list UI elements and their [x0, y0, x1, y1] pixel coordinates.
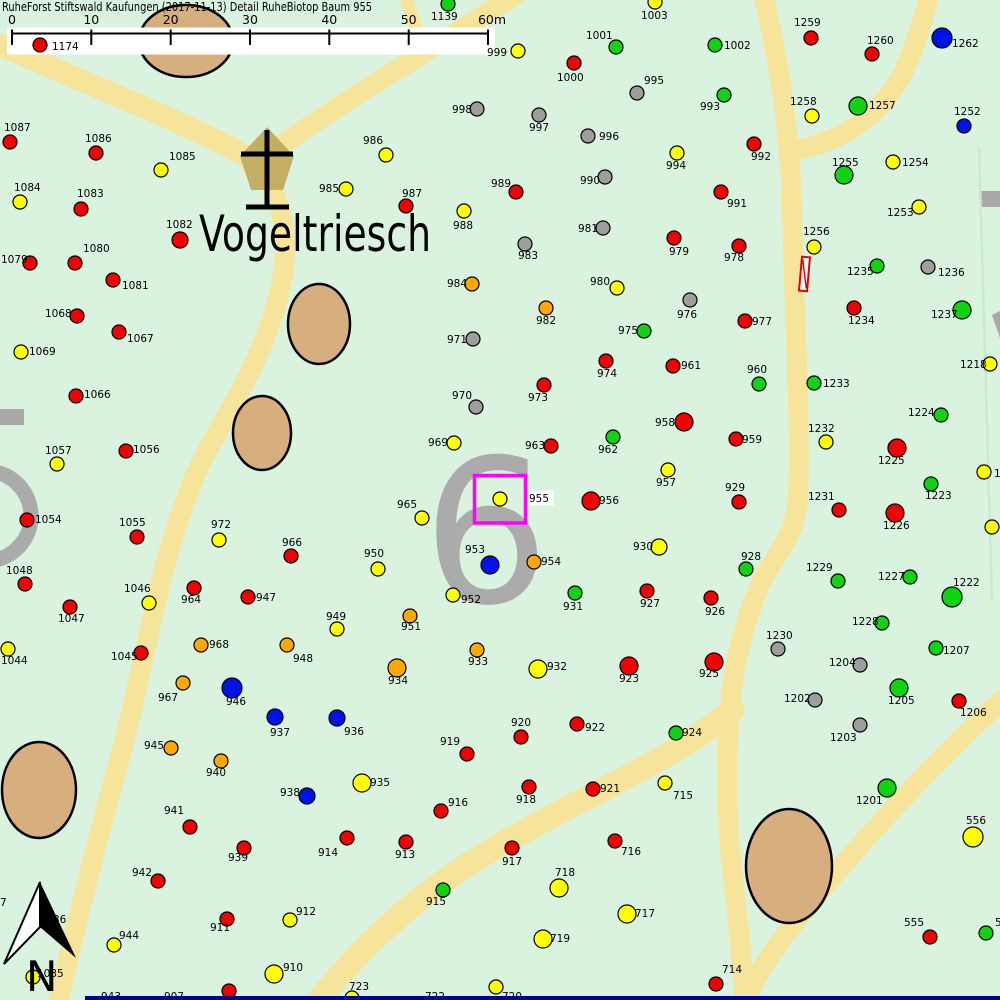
tree-marker-949[interactable] [330, 622, 344, 636]
tree-label: 1236 [938, 267, 965, 279]
tree-marker-1222[interactable] [942, 587, 962, 607]
tree-marker-1003[interactable] [648, 0, 662, 9]
tree-marker-1081[interactable] [106, 273, 120, 287]
tree-label: 957 [656, 477, 676, 489]
tree-marker-947[interactable] [241, 590, 255, 604]
tree-label: 1231 [808, 491, 835, 503]
tree-marker-995[interactable] [630, 86, 644, 100]
tree-label: 716 [621, 846, 641, 858]
clearing [746, 809, 832, 923]
tree-marker-1001[interactable] [609, 40, 623, 54]
map-title: RuheForst Stiftswald Kaufungen (2017-11-… [2, 0, 372, 14]
tree-label: 994 [666, 160, 686, 172]
tree-label: 969 [428, 437, 448, 449]
tree-marker-964[interactable] [187, 581, 201, 595]
tree-label: 949 [326, 611, 346, 623]
tree-marker-1203[interactable] [853, 718, 867, 732]
tree-marker-716[interactable] [608, 834, 622, 848]
tree-marker-965[interactable] [415, 511, 429, 525]
tree-label: 1218 [960, 359, 987, 371]
tree-marker-924[interactable] [669, 726, 683, 740]
tree-marker-971[interactable] [466, 332, 480, 346]
tree-marker-985[interactable] [339, 182, 353, 196]
tree-label: 945 [144, 740, 164, 752]
tree-label: 980 [590, 276, 610, 288]
tree-marker-940[interactable] [214, 754, 228, 768]
tree-label: 993 [700, 101, 720, 113]
tree-marker-1253[interactable] [912, 200, 926, 214]
tree-marker-956[interactable] [582, 492, 600, 510]
tree-marker-907[interactable] [222, 984, 236, 998]
tree-marker-1229[interactable] [831, 574, 845, 588]
tree-label: 1068 [45, 308, 72, 320]
tree-marker-980[interactable] [610, 281, 624, 295]
tree-label: 968 [209, 639, 229, 651]
tree-marker-1254[interactable] [886, 155, 900, 169]
tree-marker-1139[interactable] [441, 0, 455, 11]
tree-label: 1223 [925, 490, 952, 502]
tree-marker-916[interactable] [434, 804, 448, 818]
tree-marker-989[interactable] [509, 185, 523, 199]
tree-marker-972[interactable] [212, 533, 226, 547]
tree-marker-977[interactable] [738, 314, 752, 328]
tree-label: 995 [644, 75, 664, 87]
tree-marker-1056[interactable] [119, 444, 133, 458]
tree-marker-966[interactable] [284, 549, 298, 563]
tree-label: 965 [397, 499, 417, 511]
tree-label: 1067 [127, 333, 154, 345]
tree-label: 933 [468, 656, 488, 668]
tree-label: 1225 [878, 455, 905, 467]
tree-marker-984[interactable] [465, 277, 479, 291]
tree-label: 989 [491, 178, 511, 190]
tree-label: 983 [518, 250, 538, 262]
tree-label: 922 [585, 722, 605, 734]
tree-marker-1002[interactable] [708, 38, 722, 52]
tree-label: 1206 [960, 707, 987, 719]
tree-label: 1000 [557, 72, 584, 84]
tree-marker-717[interactable] [618, 905, 636, 923]
tree-marker-998[interactable] [470, 102, 484, 116]
tree-label: 1260 [867, 35, 894, 47]
tree-marker-1084[interactable] [13, 195, 27, 209]
tree-marker-1087[interactable] [3, 135, 17, 149]
clearing [2, 742, 76, 838]
tree-marker-1086[interactable] [89, 146, 103, 160]
tree-marker-969[interactable] [447, 436, 461, 450]
tree-marker-942[interactable] [151, 874, 165, 888]
gray-structure [0, 409, 24, 425]
tree-marker-1068[interactable] [70, 309, 84, 323]
tree-marker-1085[interactable] [154, 163, 168, 177]
tree-label: 963 [525, 440, 545, 452]
tree-label: 932 [547, 661, 567, 673]
tree-label: 958 [655, 417, 675, 429]
tree-marker-962[interactable] [606, 430, 620, 444]
tree-label: 961 [681, 360, 701, 372]
tree-marker-999[interactable] [511, 44, 525, 58]
tree-label: 1056 [133, 444, 160, 456]
tree-label: 990 [580, 175, 600, 187]
tree-marker-1066[interactable] [69, 389, 83, 403]
tree-marker-910[interactable] [265, 965, 283, 983]
tree-marker-955[interactable] [493, 492, 507, 506]
tree-marker-1057[interactable] [50, 457, 64, 471]
tree-marker-967[interactable] [176, 676, 190, 690]
tree-label: 998 [452, 104, 472, 116]
tree-label: 1234 [848, 315, 875, 327]
tree-label: 1139 [431, 11, 458, 23]
tree-label: 714 [722, 964, 742, 976]
tree-marker-1206[interactable] [952, 694, 966, 708]
tree-label: 927 [640, 598, 660, 610]
scale-bar-label: 60m [478, 12, 506, 27]
tree-label: 944 [119, 930, 139, 942]
tree-label: 718 [555, 867, 575, 879]
tree-label: 970 [452, 390, 472, 402]
tree-marker-946[interactable] [222, 678, 242, 698]
tree-marker-918[interactable] [522, 780, 536, 794]
tree-label: 719 [550, 933, 570, 945]
tree-label: 960 [747, 364, 767, 376]
tree-marker-1055[interactable] [130, 530, 144, 544]
tree-label: 1258 [790, 96, 817, 108]
tree-label: 1054 [35, 514, 62, 526]
tree-marker-913[interactable] [399, 835, 413, 849]
tree-label: 1233 [823, 378, 850, 390]
tree-label: 985 [319, 183, 339, 195]
tree-label: 919 [440, 736, 460, 748]
scale-bar-label: 20 [163, 12, 179, 27]
tree-label: 962 [598, 444, 618, 456]
tree-label: 959 [742, 434, 762, 446]
tree-label: 912 [296, 906, 316, 918]
tree-marker-931[interactable] [568, 586, 582, 600]
tree-marker-1067[interactable] [112, 325, 126, 339]
tree-marker-982[interactable] [539, 301, 553, 315]
tree-marker-983[interactable] [518, 237, 532, 251]
tree-label: 1227 [878, 571, 905, 583]
tree-marker-929[interactable] [732, 495, 746, 509]
tree-marker-1207[interactable] [929, 641, 943, 655]
tree-marker-1048[interactable] [18, 577, 32, 591]
tree-marker-1262[interactable] [932, 28, 952, 48]
tree-marker-937[interactable] [267, 709, 283, 725]
tree-marker-917[interactable] [505, 841, 519, 855]
tree-label: 955 [529, 493, 549, 505]
tree-label: 931 [563, 601, 583, 613]
tree-marker-1232[interactable] [819, 435, 833, 449]
tree-label: 923 [619, 673, 639, 685]
tree-marker-932[interactable] [529, 660, 547, 678]
tree-marker-1054[interactable] [20, 513, 34, 527]
tree-label: 914 [318, 847, 338, 859]
tree-marker-unlabeled[interactable] [979, 926, 993, 940]
tree-label: 971 [447, 334, 467, 346]
tree-marker-1047[interactable] [63, 600, 77, 614]
tree-marker-718[interactable] [550, 879, 568, 897]
tree-label: 1081 [122, 280, 149, 292]
tree-label: 978 [724, 252, 744, 264]
tree-label: 946 [226, 696, 246, 708]
tree-marker-938[interactable] [299, 788, 315, 804]
tree-label: 1202 [784, 693, 811, 705]
tree-marker-973[interactable] [537, 378, 551, 392]
tree-label: 915 [426, 896, 446, 908]
tree-label: 987 [402, 188, 422, 200]
tree-label: 1262 [952, 38, 979, 50]
red-post-marker [799, 257, 810, 292]
tree-label: 1201 [856, 795, 883, 807]
tree-marker-912[interactable] [283, 913, 297, 927]
tree-label: 982 [536, 315, 556, 327]
tree-label: 950 [364, 548, 384, 560]
tree-label: 940 [206, 767, 226, 779]
tree-label: 1257 [869, 100, 896, 112]
tree-label-partial: 5 [995, 917, 1000, 929]
tree-marker-1252[interactable] [957, 119, 971, 133]
tree-label: 911 [210, 922, 230, 934]
bottom-edge-strip [85, 996, 1000, 1000]
tree-label: 1232 [808, 423, 835, 435]
tree-label: 1253 [887, 207, 914, 219]
tree-label: 1254 [902, 157, 929, 169]
tree-label: 1047 [58, 613, 85, 625]
tree-label: 929 [725, 482, 745, 494]
tree-marker-1231[interactable] [832, 503, 846, 517]
tree-marker-953[interactable] [481, 556, 499, 574]
tree-marker-715[interactable] [658, 776, 672, 790]
tree-label: 928 [741, 551, 761, 563]
tree-marker-556[interactable] [963, 827, 983, 847]
forest-map: 6 0102030405060m RuheForst Stiftswald Ka… [0, 0, 1000, 1000]
tree-label: 996 [599, 131, 619, 143]
tree-label: 991 [727, 198, 747, 210]
tree-label: 1226 [883, 520, 910, 532]
tree-label: 1055 [119, 517, 146, 529]
tree-label: 1079 [1, 254, 28, 266]
tree-marker-1080[interactable] [68, 256, 82, 270]
tree-marker-958[interactable] [675, 413, 693, 431]
tree-label: 1001 [586, 30, 613, 42]
scale-bar-label: 50 [401, 12, 417, 27]
tree-label-partial: 12 [994, 468, 1000, 480]
tree-marker-988[interactable] [457, 204, 471, 218]
tree-label: 999 [487, 47, 507, 59]
tree-label: 1057 [45, 445, 72, 457]
tree-marker-926[interactable] [704, 591, 718, 605]
tree-marker-1224[interactable] [934, 408, 948, 422]
tree-marker-928[interactable] [739, 562, 753, 576]
tree-marker-1234[interactable] [847, 301, 861, 315]
tree-label: 1229 [806, 562, 833, 574]
tree-label: 924 [682, 727, 702, 739]
scale-bar-label: 0 [8, 12, 16, 27]
tree-label: 1046 [124, 583, 151, 595]
tree-marker-1230[interactable] [771, 642, 785, 656]
tree-marker-920[interactable] [514, 730, 528, 744]
tree-label: 910 [283, 962, 303, 974]
tree-label: 1205 [888, 695, 915, 707]
tree-marker-963[interactable] [544, 439, 558, 453]
tree-marker-1069[interactable] [14, 345, 28, 359]
tree-label: 938 [280, 787, 300, 799]
tree-marker-957[interactable] [661, 463, 675, 477]
tree-label: 1085 [169, 151, 196, 163]
tree-marker-921[interactable] [586, 782, 600, 796]
tree-marker-954[interactable] [527, 555, 541, 569]
tree-marker-941[interactable] [183, 820, 197, 834]
map-canvas: 6 0102030405060m RuheForst Stiftswald Ka… [0, 0, 1000, 1000]
tree-label: 916 [448, 797, 468, 809]
tree-marker-714[interactable] [709, 977, 723, 991]
tree-marker-950[interactable] [371, 562, 385, 576]
tree-label: 988 [453, 220, 473, 232]
tree-label: 1230 [766, 630, 793, 642]
tree-marker-1082[interactable] [172, 232, 188, 248]
north-label: N [26, 952, 57, 1000]
tree-marker-990[interactable] [598, 170, 612, 184]
tree-marker-978[interactable] [732, 239, 746, 253]
tree-marker-968[interactable] [194, 638, 208, 652]
tree-marker-1259[interactable] [804, 31, 818, 45]
scale-bar-label: 30 [242, 12, 258, 27]
tree-marker-945[interactable] [164, 741, 178, 755]
tree-label: 977 [752, 316, 772, 328]
tree-marker-996[interactable] [581, 129, 595, 143]
tree-label: 1003 [641, 10, 668, 22]
tree-marker-1223[interactable] [924, 477, 938, 491]
tree-marker-981[interactable] [596, 221, 610, 235]
tree-label: 1082 [166, 219, 193, 231]
tree-marker-933[interactable] [470, 643, 484, 657]
tree-marker-1046[interactable] [142, 596, 156, 610]
tree-label: 973 [528, 392, 548, 404]
tree-marker-987[interactable] [399, 199, 413, 213]
tree-marker-997[interactable] [532, 108, 546, 122]
tree-label: 921 [600, 783, 620, 795]
tree-marker-948[interactable] [280, 638, 294, 652]
tree-marker-993[interactable] [717, 88, 731, 102]
tree-marker-unlabeled[interactable] [977, 465, 991, 479]
tree-label: 556 [966, 815, 986, 827]
tree-marker-975[interactable] [637, 324, 651, 338]
tree-marker-1227[interactable] [903, 570, 917, 584]
tree-marker-1044[interactable] [1, 642, 15, 656]
tree-marker-922[interactable] [570, 717, 584, 731]
tree-marker-976[interactable] [683, 293, 697, 307]
tree-marker-914[interactable] [340, 831, 354, 845]
tree-marker-1258[interactable] [805, 109, 819, 123]
tree-label: 936 [344, 726, 364, 738]
tree-label: 930 [633, 541, 653, 553]
tree-label: 1083 [77, 188, 104, 200]
tree-marker-1256[interactable] [807, 240, 821, 254]
tree-marker-919[interactable] [460, 747, 474, 761]
clearing [233, 396, 291, 470]
tree-label: 1045 [111, 651, 138, 663]
tree-label: 715 [673, 790, 693, 802]
tree-label: 913 [395, 849, 415, 861]
tree-label: 984 [447, 278, 467, 290]
tree-label: 979 [669, 246, 689, 258]
tree-label: 1086 [85, 133, 112, 145]
tree-label: 920 [511, 717, 531, 729]
tree-label: 935 [370, 777, 390, 789]
tree-label: 926 [705, 606, 725, 618]
tree-label: 1237 [931, 309, 958, 321]
tree-marker-974[interactable] [599, 354, 613, 368]
tree-label: 997 [529, 122, 549, 134]
tree-label: 723 [349, 981, 369, 993]
tree-marker-979[interactable] [667, 231, 681, 245]
tree-label: 1255 [832, 157, 859, 169]
tree-marker-1257[interactable] [849, 97, 867, 115]
tree-label: 976 [677, 309, 697, 321]
tree-label: 1224 [908, 407, 935, 419]
tree-label: 992 [751, 151, 771, 163]
tree-marker-952[interactable] [446, 588, 460, 602]
tree-marker-927[interactable] [640, 584, 654, 598]
tree-label: 1228 [852, 616, 879, 628]
tree-marker-720[interactable] [489, 980, 503, 994]
tree-label: 934 [388, 675, 408, 687]
tree-marker-915[interactable] [436, 883, 450, 897]
tree-marker-1083[interactable] [74, 202, 88, 216]
tree-label: 717 [635, 908, 655, 920]
tree-label: 918 [516, 794, 536, 806]
tree-label: 974 [597, 368, 617, 380]
tree-label: 972 [211, 519, 231, 531]
tree-marker-986[interactable] [379, 148, 393, 162]
tree-marker-930[interactable] [651, 539, 667, 555]
tree-label: 1069 [29, 346, 56, 358]
tree-marker-1236[interactable] [921, 260, 935, 274]
clearing [288, 284, 350, 364]
tree-marker-994[interactable] [670, 146, 684, 160]
tree-marker-936[interactable] [329, 710, 345, 726]
tree-marker-unlabeled[interactable] [985, 520, 999, 534]
tree-label: 941 [164, 805, 184, 817]
tree-label: 1048 [6, 565, 33, 577]
tree-marker-991[interactable] [714, 185, 728, 199]
tree-label: 1222 [953, 577, 980, 589]
tree-marker-1233[interactable] [807, 376, 821, 390]
tree-label: 986 [363, 135, 383, 147]
tree-label: 975 [618, 325, 638, 337]
tree-marker-992[interactable] [747, 137, 761, 151]
tree-marker-960[interactable] [752, 377, 766, 391]
tree-label: 952 [461, 594, 481, 606]
tree-label: 925 [699, 668, 719, 680]
tree-marker-970[interactable] [469, 400, 483, 414]
tree-label: 1066 [84, 389, 111, 401]
tree-marker-1000[interactable] [567, 56, 581, 70]
tree-marker-1260[interactable] [865, 47, 879, 61]
scale-bar-label: 10 [83, 12, 99, 27]
tree-marker-935[interactable] [353, 774, 371, 792]
tree-marker-555[interactable] [923, 930, 937, 944]
tree-label: 1207 [943, 645, 970, 657]
tree-marker-1174[interactable] [33, 38, 47, 52]
tree-marker-959[interactable] [729, 432, 743, 446]
place-label: Vogeltriesch [199, 205, 431, 263]
tree-label: 1203 [830, 732, 857, 744]
tree-marker-961[interactable] [666, 359, 680, 373]
tree-label: 1204 [829, 657, 856, 669]
tree-label: 954 [541, 556, 561, 568]
tree-label: 1174 [52, 41, 79, 53]
